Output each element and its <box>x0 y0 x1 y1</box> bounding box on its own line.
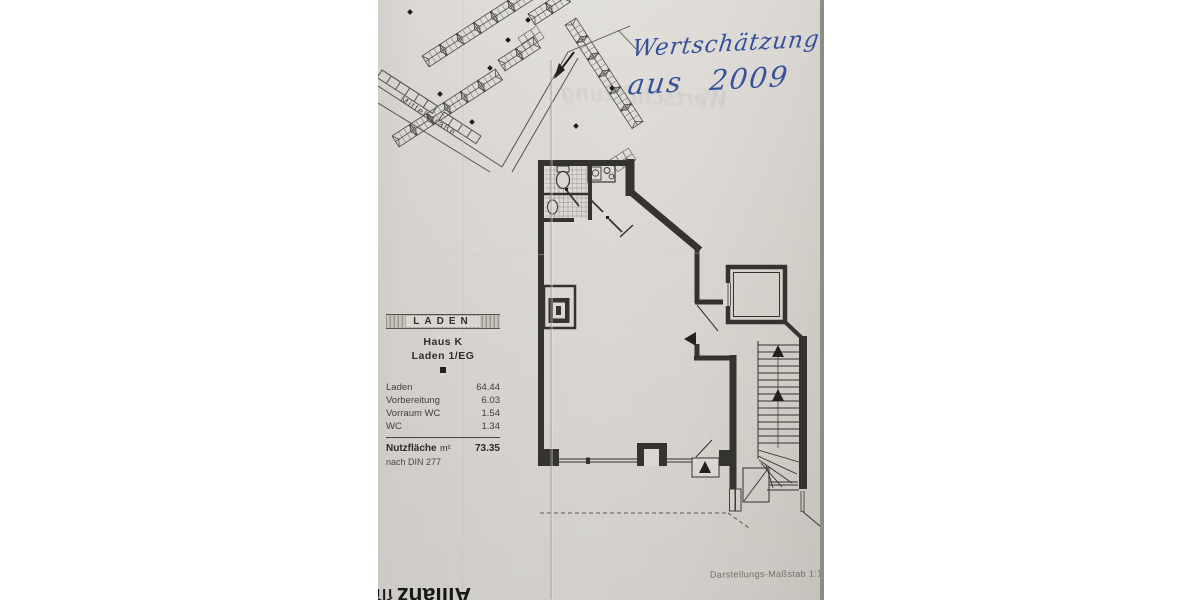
document-paper: Wertschätzung Mittelstraße Wertschätzung… <box>378 0 824 600</box>
total-area-row: Nutzfläche m² 73.35 <box>386 443 500 454</box>
area-label: WC <box>386 420 402 433</box>
legend-divider <box>386 437 500 438</box>
scale-caption: Darstellungs-Maßstab 1:100 <box>710 568 824 579</box>
legend-title: LADEN <box>406 316 479 327</box>
handwritten-note: Wertschätzung aus 2009 <box>626 26 821 101</box>
legend-panel: LADEN Haus K Laden 1/EG Laden 64.44 Vorb… <box>386 314 500 467</box>
area-label: Vorbereitung <box>386 394 440 407</box>
north-arrow-icon <box>554 52 574 79</box>
allianz-logo-text: Allianz <box>397 582 471 600</box>
legend-unit: Laden 1/EG <box>386 350 500 362</box>
area-value: 1.34 <box>482 420 501 433</box>
area-value: 1.54 <box>482 407 501 420</box>
area-row: Vorraum WC 1.54 <box>386 407 500 420</box>
elevator-shaft <box>723 267 785 322</box>
allianz-eagle-icon <box>378 586 394 600</box>
floor-plan <box>538 159 820 528</box>
area-row: Laden 64.44 <box>386 381 500 394</box>
legend-marker-square <box>440 367 446 373</box>
total-value: 73.35 <box>468 443 500 454</box>
din-note: nach DIN 277 <box>386 457 500 467</box>
staircase <box>758 336 803 490</box>
area-row: WC 1.34 <box>386 420 500 433</box>
area-label: Laden <box>386 381 412 394</box>
scanned-photo: Wertschätzung Mittelstraße Wertschätzung… <box>0 0 1200 600</box>
area-value: 6.03 <box>482 394 501 407</box>
area-value: 64.44 <box>476 381 500 394</box>
area-row: Vorbereitung 6.03 <box>386 394 500 407</box>
legend-title-banner: LADEN <box>386 314 500 329</box>
total-unit: m² <box>440 443 468 454</box>
total-label: Nutzfläche <box>386 443 440 454</box>
entrance-door <box>692 440 719 477</box>
allianz-logo: Allianz <box>378 582 471 600</box>
legend-house: Haus K <box>386 336 500 348</box>
area-label: Vorraum WC <box>386 407 440 420</box>
